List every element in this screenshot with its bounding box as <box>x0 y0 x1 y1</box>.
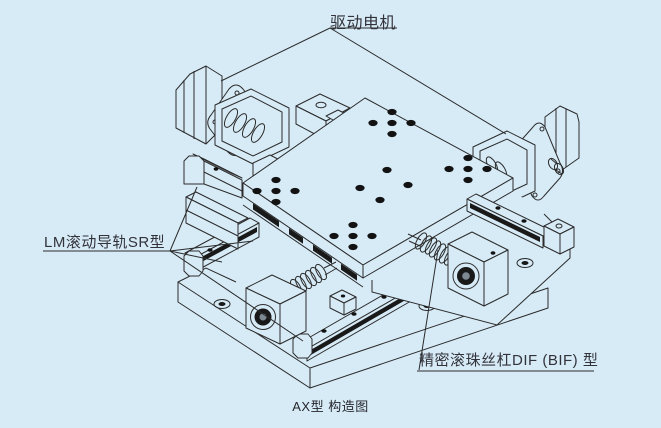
label-lm-guide: LM滚动导轨SR型 <box>44 231 165 252</box>
diagram-caption: AX型 构造图 <box>0 396 661 415</box>
label-ball-screw: 精密滚珠丝杠DIF (BIF) 型 <box>419 349 598 370</box>
label-drive-motor: 驱动电机 <box>330 9 396 33</box>
y-rail-left-end <box>184 154 242 198</box>
diagram-page: 驱动电机 LM滚动导轨SR型 精密滚珠丝杠DIF (BIF) 型 AX型 构造图 <box>0 0 661 428</box>
